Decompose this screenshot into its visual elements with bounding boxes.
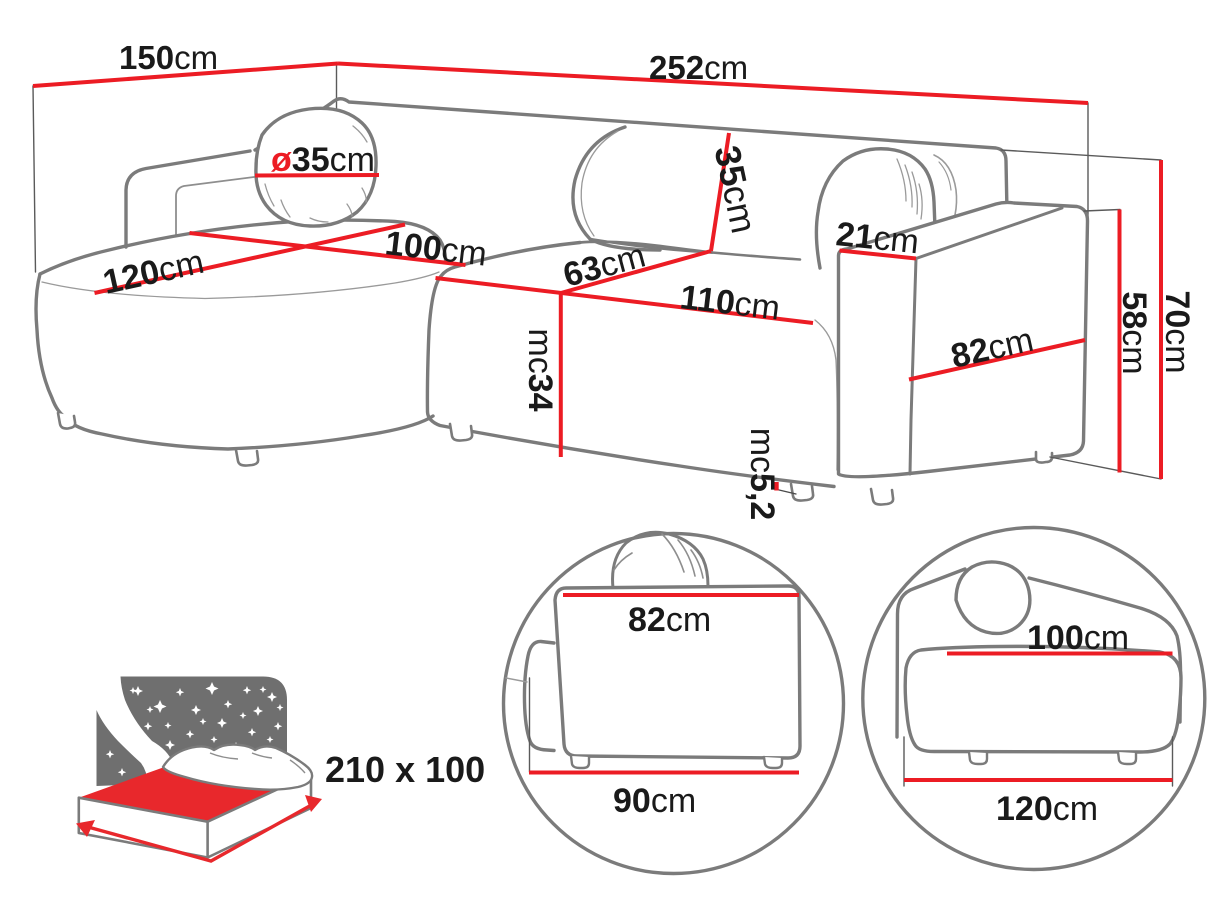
svg-text:58cm: 58cm xyxy=(1115,291,1153,374)
svg-text:120cm: 120cm xyxy=(996,790,1098,828)
svg-text:100cm: 100cm xyxy=(1027,619,1129,657)
svg-text:mc5,2: mc5,2 xyxy=(743,428,781,521)
svg-text:ø35cm: ø35cm xyxy=(271,141,375,179)
svg-text:90cm: 90cm xyxy=(613,782,696,820)
svg-text:210 x 100: 210 x 100 xyxy=(325,749,485,790)
svg-text:mc34: mc34 xyxy=(521,328,559,411)
svg-text:252cm: 252cm xyxy=(649,49,748,86)
svg-text:150cm: 150cm xyxy=(119,39,218,76)
svg-text:82cm: 82cm xyxy=(628,601,711,639)
svg-text:70cm: 70cm xyxy=(1158,290,1196,373)
